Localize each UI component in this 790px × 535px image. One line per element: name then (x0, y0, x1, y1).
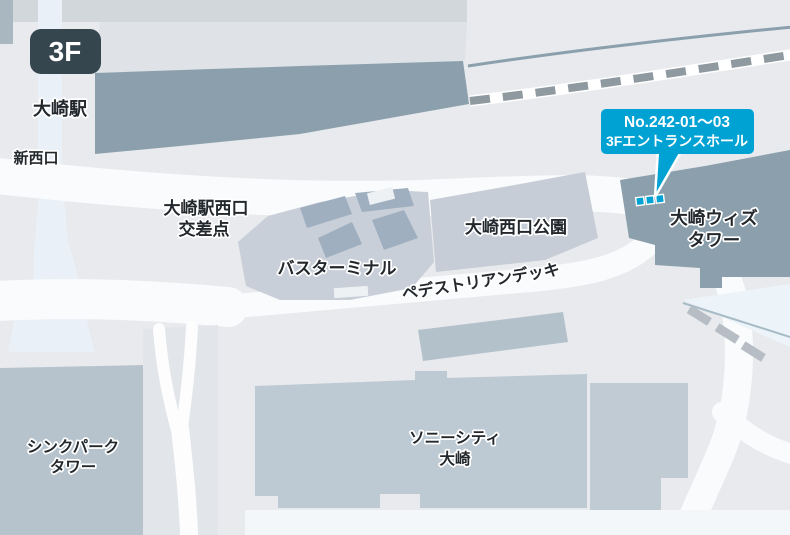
entrance-square-2 (646, 196, 655, 205)
top-left-structure (0, 0, 13, 44)
map-canvas: No.242-01～03 3Fエントランスホール 大崎駅 新西口 大崎駅西口 交… (0, 0, 790, 535)
station-area-map: No.242-01～03 3Fエントランスホール 大崎駅 新西口 大崎駅西口 交… (0, 0, 790, 535)
think-park-label-line1: シンクパーク (27, 438, 119, 456)
new-west-exit-label: 新西口 (13, 149, 58, 167)
sony-city-label-line2: 大崎 (439, 449, 471, 468)
wiz-tower-label-line2: タワー (688, 230, 741, 250)
station-label: 大崎駅 (33, 98, 88, 119)
crossing-road (0, 299, 228, 307)
floor-badge-label: 3F (49, 36, 82, 67)
bottom-pale-strip (245, 510, 790, 535)
walkway-patch (8, 315, 95, 352)
wiz-tower-label-line1: 大崎ウィズ (670, 208, 758, 228)
callout-number: No.242-01～03 (624, 114, 730, 131)
top-platform-band (0, 0, 467, 22)
bus-terminal-label: バスターミナル (278, 259, 397, 278)
sony-city-label-line1: ソニーシティ (409, 430, 501, 447)
callout-entrance-label: 3Fエントランスホール (606, 133, 748, 149)
think-park-label-line2: タワー (50, 458, 97, 476)
entrance-square-1 (636, 197, 645, 206)
crossing-label-line2: 交差点 (179, 219, 230, 239)
crossing-label-line1: 大崎駅西口 (164, 198, 249, 218)
park-label: 大崎西口公園 (465, 217, 567, 237)
